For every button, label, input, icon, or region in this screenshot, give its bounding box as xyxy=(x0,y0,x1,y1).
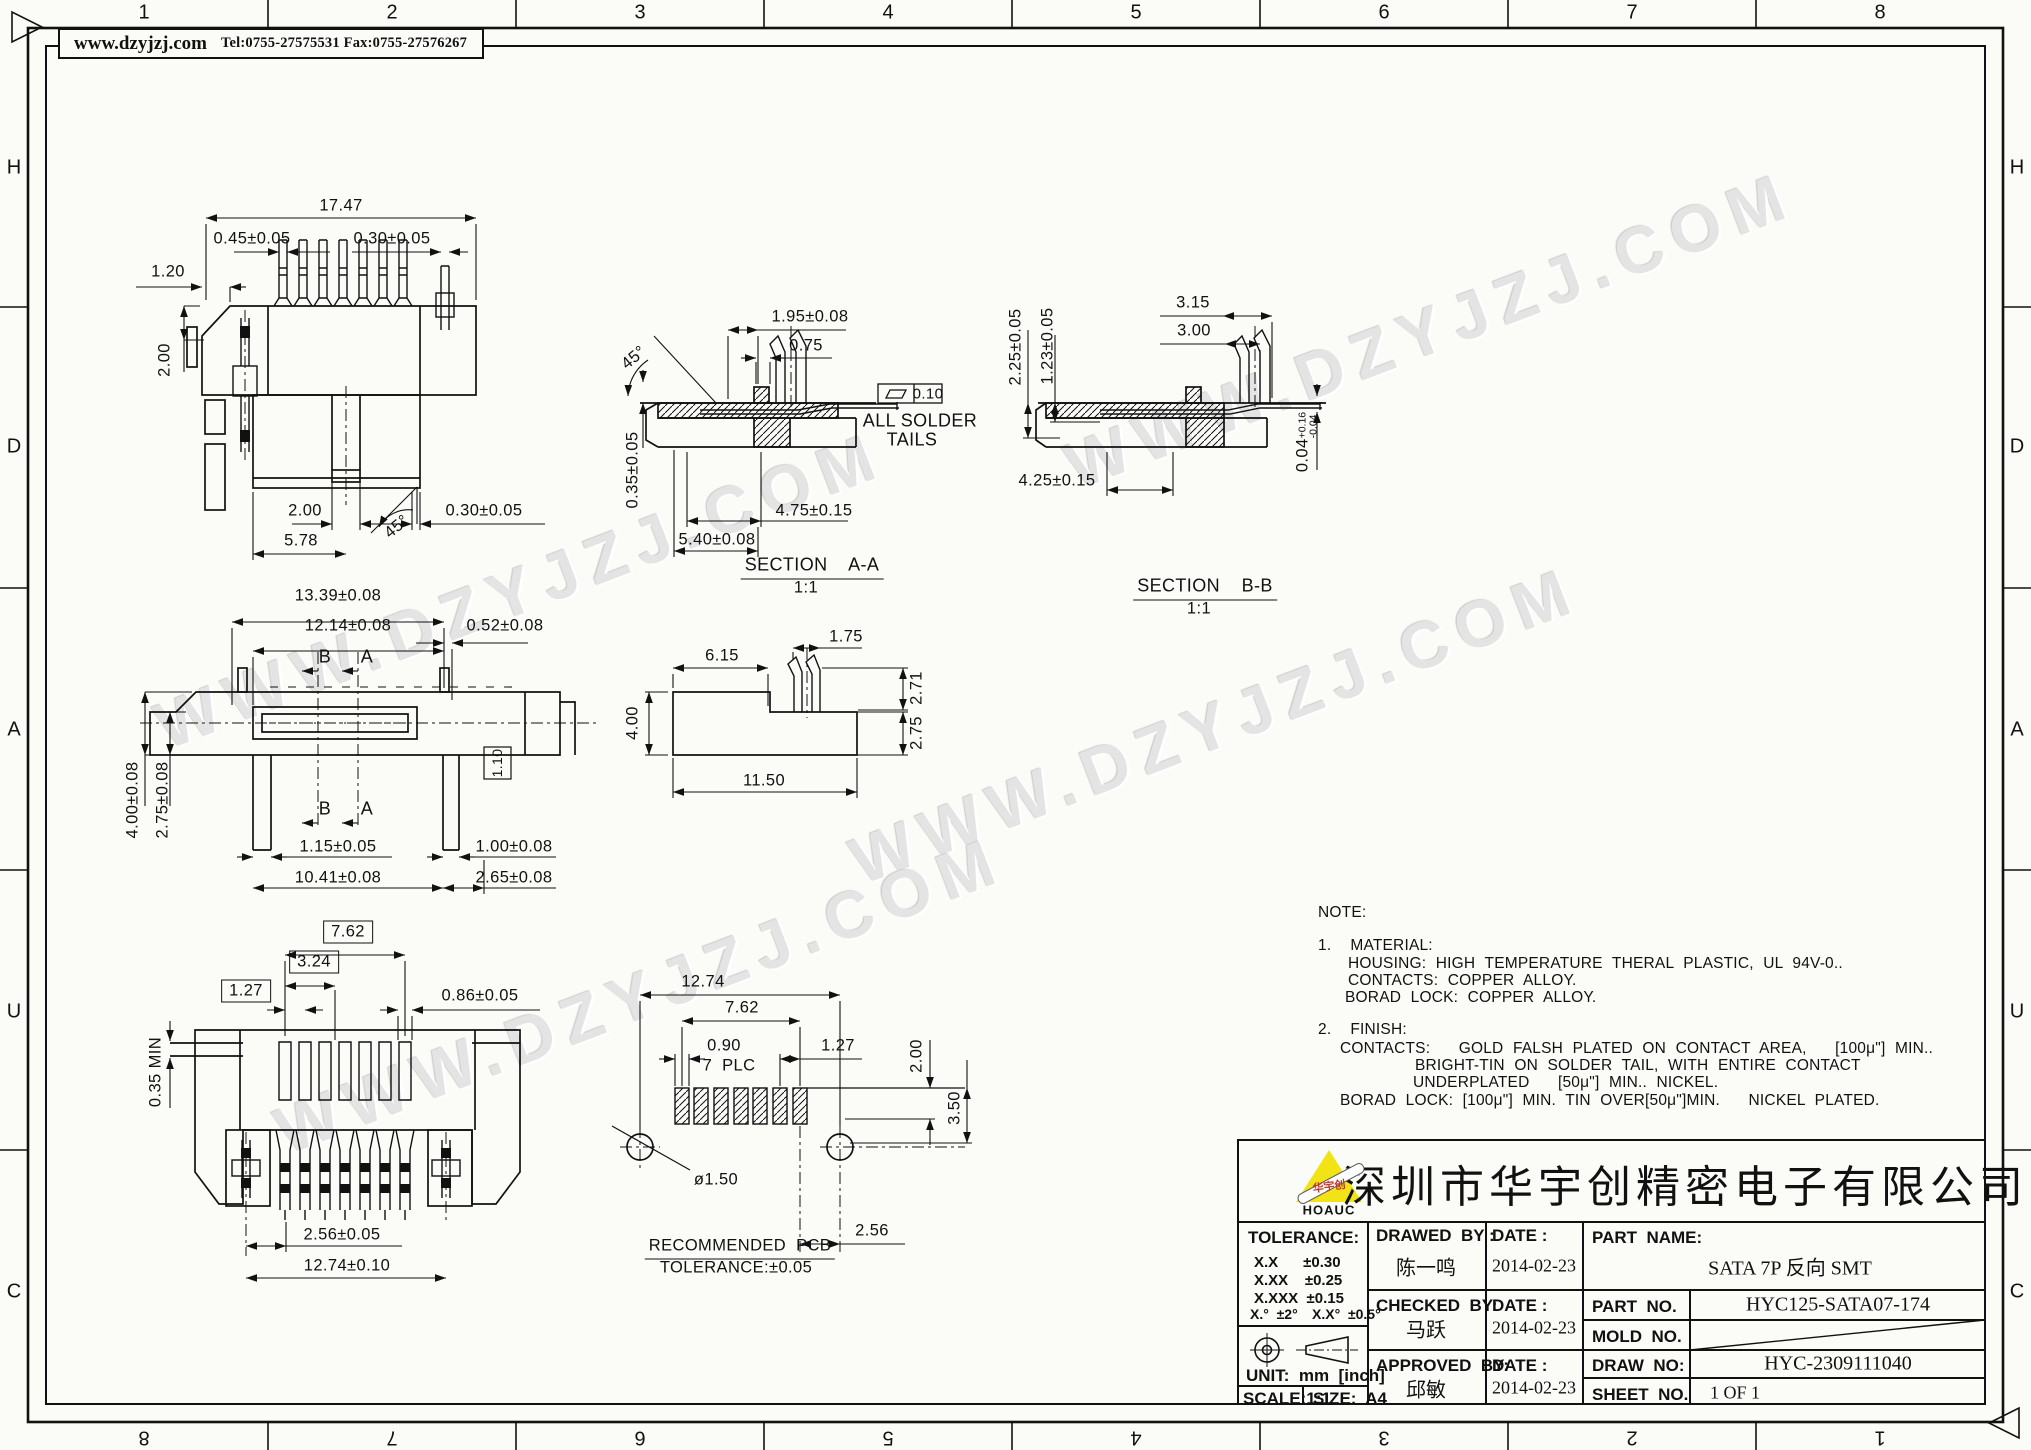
dim-gap: 0.86±0.05 xyxy=(442,987,519,1006)
dim-profile-1: 6.15 xyxy=(705,647,739,666)
note-line: BRIGHT-TIN ON SOLDER TAIL, WITH ENTIRE C… xyxy=(1415,1058,1861,1074)
dim-leg-left: 1.15±0.05 xyxy=(300,838,377,857)
zone-row-label: H xyxy=(2010,157,2024,180)
part-no-value: HYC125-SATA07-174 xyxy=(1746,1294,1930,1317)
notes-heading: NOTE: xyxy=(1318,905,1366,921)
zone-col-label: 8 xyxy=(1874,2,1885,25)
dim-pin-left: 0.45±0.05 xyxy=(214,230,291,249)
dim-pin-right: 0.30±0.05 xyxy=(354,230,431,249)
dim-min-lip: 0.35 MIN xyxy=(147,1037,166,1107)
zone-col-label: 1 xyxy=(1874,1426,1885,1449)
dim-profile-2: 1.75 xyxy=(829,628,863,647)
dim-post-span: 12.74±0.10 xyxy=(304,1257,390,1276)
dim-basic-762: 7.62 xyxy=(323,921,373,944)
section-a-title: SECTION A-A xyxy=(741,555,884,580)
dim-edge: 1.20 xyxy=(151,263,185,282)
note-line: 1. MATERIAL: xyxy=(1318,938,1433,954)
sheet-no-label: SHEET NO. xyxy=(1592,1385,1688,1405)
dim-profile-3: 2.71 xyxy=(908,671,927,705)
pcb-title: RECOMMENDED PCB xyxy=(645,1237,835,1260)
draw-no-label: DRAW NO: xyxy=(1592,1356,1685,1376)
section-a-arrow-label: A xyxy=(361,799,373,820)
dim-front-w3: 0.52±0.08 xyxy=(467,617,544,636)
drawing-sheet: WWW.DZYJZJ.COM WWW.DZYJZJ.COM WWW.DZYJZJ… xyxy=(0,0,2031,1450)
dim-end-offset: 2.65±0.08 xyxy=(476,869,553,888)
zone-col-label: 5 xyxy=(882,1426,893,1449)
size-label: SIZE: A4 xyxy=(1313,1389,1387,1409)
tolerance-row: X.X ±0.30 xyxy=(1254,1254,1341,1271)
note-line: BORAD LOCK: COPPER ALLOY. xyxy=(1345,990,1596,1006)
mold-no-label: MOLD NO. xyxy=(1592,1327,1682,1347)
dim-sb-1: 3.15 xyxy=(1176,294,1210,313)
dim-sb-6-tolerance: 0.04+0.16-0.04 xyxy=(1294,412,1319,472)
zone-row-label: C xyxy=(7,1281,21,1304)
dim-sb-5: 4.25±0.15 xyxy=(1019,472,1096,491)
zone-row-label: U xyxy=(2010,1001,2024,1024)
zone-row-label: D xyxy=(7,436,21,459)
dim-sb-6-lower: -0.04 xyxy=(1308,412,1319,439)
tolerance-row: X.X° ±0.5° xyxy=(1312,1306,1381,1322)
zone-col-label: 6 xyxy=(634,1426,645,1449)
zone-row-label: H xyxy=(7,157,21,180)
tolerance-label: TOLERANCE: xyxy=(1248,1228,1359,1248)
note-line: HOUSING: HIGH TEMPERATURE THERAL PLASTIC… xyxy=(1348,956,1843,972)
draw-no-value: HYC-2309111040 xyxy=(1764,1353,1911,1376)
dim-post-pitch: 2.56±0.05 xyxy=(304,1226,381,1245)
note-line: CONTACTS: GOLD FALSH PLATED ON CONTACT A… xyxy=(1340,1041,1933,1057)
dim-sa-1: 1.95±0.08 xyxy=(772,308,849,327)
dim-sb-3: 2.25±0.05 xyxy=(1007,309,1026,386)
dim-pcb-plc: 7 PLC xyxy=(703,1057,756,1076)
dim-pcb-3: 0.90 xyxy=(707,1037,741,1056)
dim-pcb-5: 2.00 xyxy=(908,1039,927,1073)
note-line: BORAD LOCK: [100μ"] MIN. TIN OVER[50μ"]M… xyxy=(1340,1093,1880,1109)
zone-col-label: 7 xyxy=(386,1426,397,1449)
dim-sa-5: 5.40±0.08 xyxy=(679,531,756,550)
dim-front-h2: 2.75±0.08 xyxy=(154,762,173,839)
drawn-date: 2014-02-23 xyxy=(1492,1256,1576,1277)
zone-col-label: 4 xyxy=(1130,1426,1141,1449)
projection-symbols xyxy=(1250,1333,1358,1367)
company-name: 深圳市华宇创精密电子有限公司 xyxy=(1342,1151,2028,1215)
top-view-geometry xyxy=(187,240,476,510)
unit-label: UNIT: mm [inch] xyxy=(1246,1366,1385,1386)
zone-col-label: 3 xyxy=(634,2,645,25)
zone-col-label: 5 xyxy=(1130,2,1141,25)
solder-tails-note: TAILS xyxy=(887,430,938,451)
dim-front-w2: 12.14±0.08 xyxy=(305,617,391,636)
section-a-scale: 1:1 xyxy=(794,579,818,598)
zone-row-label: D xyxy=(2010,436,2024,459)
front-view-geometry xyxy=(140,652,600,850)
tolerance-row: X.XXX ±0.15 xyxy=(1254,1290,1344,1307)
tolerance-row: X.XX ±0.25 xyxy=(1254,1272,1342,1289)
dim-sb-2: 3.00 xyxy=(1177,322,1211,341)
dim-pcb-6: 3.50 xyxy=(946,1091,965,1125)
solder-tails-note: ALL SOLDER xyxy=(863,411,977,432)
zone-col-label: 2 xyxy=(386,2,397,25)
section-b-scale: 1:1 xyxy=(1187,600,1211,619)
corner-mark xyxy=(12,12,2019,1438)
dim-pcb-hole: ø1.50 xyxy=(694,1171,738,1190)
dim-sb-6-value: 0.04 xyxy=(1294,438,1312,472)
dim-sa-3: 0.35±0.05 xyxy=(624,432,643,509)
dim-sa-2: 0.75 xyxy=(789,337,823,356)
dim-profile-4: 2.75 xyxy=(908,716,927,750)
sheet-no-value: 1 OF 1 xyxy=(1710,1383,1760,1404)
section-a-arrow-label: A xyxy=(361,647,373,668)
dim-leg-right: 1.00±0.08 xyxy=(476,838,553,857)
tolerance-row: X.° ±2° xyxy=(1250,1306,1298,1322)
dim-front-w1: 13.39±0.08 xyxy=(295,587,381,606)
zone-col-label: 2 xyxy=(1626,1426,1637,1449)
dim-profile-5: 4.00 xyxy=(624,706,643,740)
dim-sa-4: 4.75±0.15 xyxy=(776,502,853,521)
dim-basic-324: 3.24 xyxy=(289,951,339,974)
zone-col-label: 3 xyxy=(1378,1426,1389,1449)
approved-date: 2014-02-23 xyxy=(1492,1378,1576,1399)
dim-basic-127: 1.27 xyxy=(221,980,271,1003)
zone-row-label: A xyxy=(7,719,20,742)
note-line: UNDERPLATED [50μ"] MIN.. NICKEL. xyxy=(1413,1075,1718,1091)
logo-sub-text: HOAUC xyxy=(1303,1203,1356,1218)
zone-col-label: 1 xyxy=(138,2,149,25)
checked-date: 2014-02-23 xyxy=(1492,1318,1576,1339)
date-label: DATE : xyxy=(1492,1296,1547,1316)
zone-col-label: 4 xyxy=(882,2,893,25)
dim-base: 5.78 xyxy=(284,532,318,551)
pcb-tolerance: TOLERANCE:±0.05 xyxy=(660,1259,812,1278)
zone-row-label: A xyxy=(2010,719,2023,742)
flatness-value: 0.10 xyxy=(913,386,944,403)
section-b-arrow-label: B xyxy=(319,647,331,668)
zone-row-label: U xyxy=(7,1001,21,1024)
dim-tail: 0.30±0.05 xyxy=(446,502,523,521)
section-a-geometry xyxy=(628,326,899,447)
dim-pcb-2: 7.62 xyxy=(725,999,759,1018)
dim-height: 2.00 xyxy=(156,343,175,377)
date-label: DATE : xyxy=(1492,1226,1547,1246)
part-no-label: PART NO. xyxy=(1592,1297,1677,1317)
dim-pcb-7: 2.56 xyxy=(855,1222,889,1241)
drawn-by-name: 陈一鸣 xyxy=(1396,1252,1456,1281)
zone-row-label: C xyxy=(2010,1281,2024,1304)
section-b-arrow-label: B xyxy=(319,799,331,820)
contact-text: Tel:0755-27575531 Fax:0755-27576267 xyxy=(221,35,467,52)
header-contact-bar: www.dzyjzj.com Tel:0755-27575531 Fax:075… xyxy=(58,28,484,59)
zone-col-label: 6 xyxy=(1378,2,1389,25)
checked-by-name: 马跃 xyxy=(1406,1314,1446,1343)
profile-view-geometry xyxy=(673,648,857,755)
dim-leg-span: 10.41±0.08 xyxy=(295,869,381,888)
note-line: 2. FINISH: xyxy=(1318,1022,1407,1038)
dim-front-h1: 4.00±0.08 xyxy=(124,762,143,839)
date-label: DATE : xyxy=(1492,1356,1547,1376)
section-b-title: SECTION B-B xyxy=(1133,576,1277,601)
dim-pcb-4: 1.27 xyxy=(821,1037,855,1056)
approved-by-name: 邱敏 xyxy=(1406,1374,1446,1403)
dim-front-boxed: 1.10 xyxy=(489,749,505,778)
pcb-view-geometry xyxy=(612,1088,965,1252)
part-name-value: SATA 7P 反向 SMT xyxy=(1708,1252,1872,1281)
website-text: www.dzyjzj.com xyxy=(74,33,207,55)
part-name-label: PART NAME: xyxy=(1592,1228,1702,1248)
dim-pcb-1: 12.74 xyxy=(681,973,724,992)
drawn-by-label: DRAWED BY : xyxy=(1376,1226,1495,1246)
dim-overall-width: 17.47 xyxy=(319,197,362,216)
zone-col-label: 7 xyxy=(1626,2,1637,25)
note-line: CONTACTS: COPPER ALLOY. xyxy=(1348,973,1577,989)
dim-slot: 2.00 xyxy=(288,502,322,521)
dim-profile-6: 11.50 xyxy=(743,772,785,791)
dim-sb-4: 1.23±0.05 xyxy=(1039,308,1058,385)
bottom-view-geometry xyxy=(170,1030,520,1256)
zone-col-label: 8 xyxy=(138,1426,149,1449)
dim-sb-6-upper: +0.16 xyxy=(1298,412,1309,439)
